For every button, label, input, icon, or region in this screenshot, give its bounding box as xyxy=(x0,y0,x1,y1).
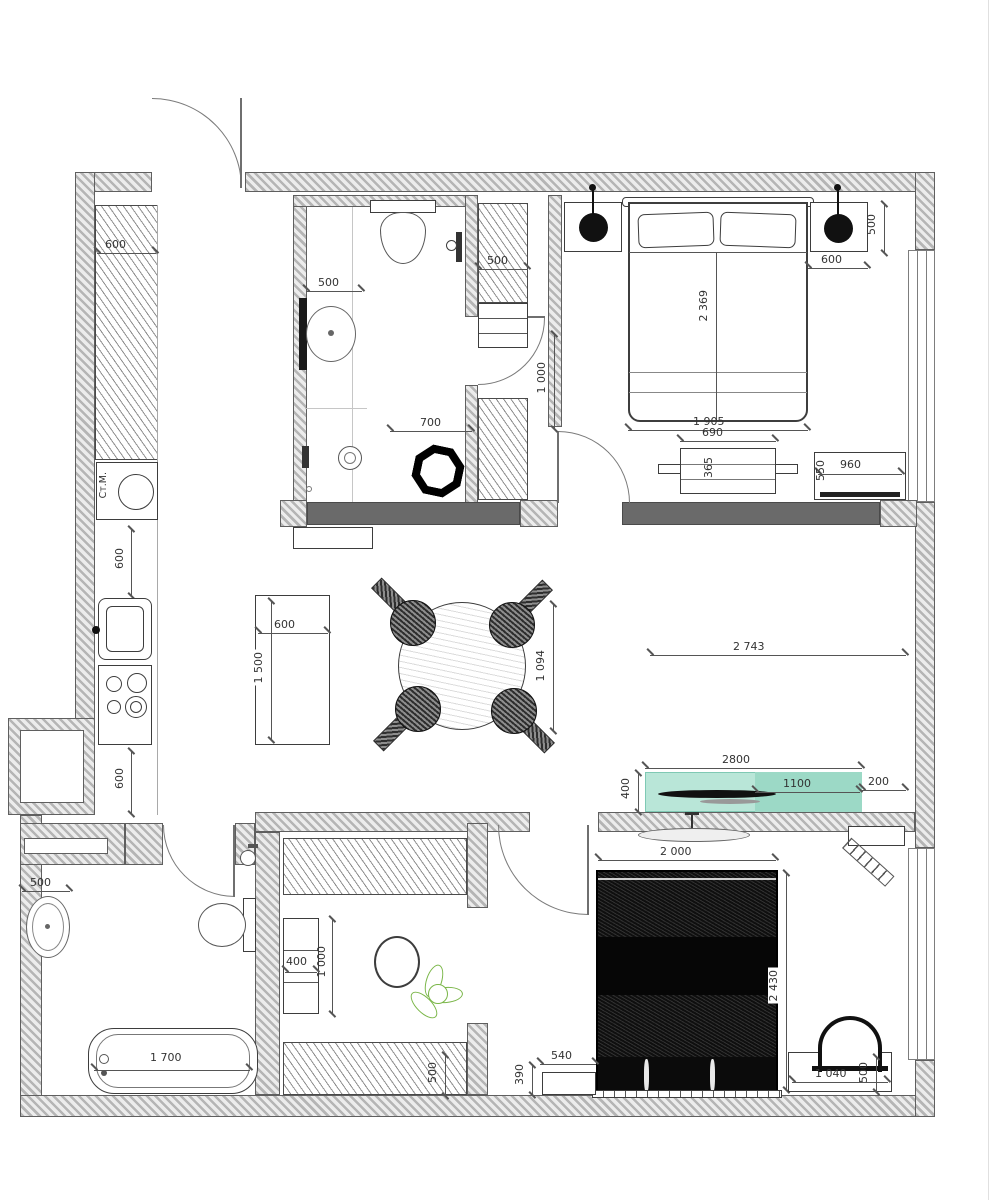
dim-line xyxy=(445,1054,446,1096)
dim-line xyxy=(258,633,328,634)
bath1-floor-line-h xyxy=(305,408,367,409)
dim-label-dresser-width: 960 xyxy=(840,459,861,470)
dim-line xyxy=(306,291,362,292)
bed1-pillow-left xyxy=(637,212,714,249)
dim-label-bench-width: 690 xyxy=(702,427,723,438)
washing-machine-drum xyxy=(118,474,154,510)
dim-label-closet-wardrobe-depth: 500 xyxy=(427,1062,438,1083)
bed1-pillow-right xyxy=(719,212,796,249)
dim-label-island-length: 1 500 xyxy=(253,650,264,686)
dim-line xyxy=(390,431,472,432)
dim-line xyxy=(862,790,906,791)
wall-partition-end-right xyxy=(880,500,917,527)
bedroom2-door-leaf xyxy=(587,825,589,915)
corridor-wardrobe-upper xyxy=(478,203,528,303)
wall-partition-bath-south xyxy=(307,502,520,525)
burner-icon-inner xyxy=(130,701,142,713)
dim-label-nightstand2-depth: 390 xyxy=(514,1064,525,1085)
dim-line xyxy=(532,1064,533,1095)
dim-label-tv-width: 1100 xyxy=(783,778,811,789)
dim-line xyxy=(540,1064,596,1065)
lamp-tip xyxy=(834,184,841,191)
dim-label-bathtub: 1 700 xyxy=(148,1052,184,1063)
dim-label-sofa: 2 743 xyxy=(733,641,765,652)
dim-line xyxy=(755,792,860,793)
dim-line xyxy=(22,891,70,892)
wall-partition-mid xyxy=(520,500,558,527)
page-edge-line xyxy=(988,0,989,1200)
burner-icon xyxy=(106,676,122,692)
duct-shaft-niche xyxy=(20,730,84,803)
corridor-wardrobe-lower xyxy=(478,398,528,500)
dim-line xyxy=(650,655,906,656)
dim-label-corridor-wardrobe: 500 xyxy=(487,255,508,266)
shower-mixer-icon xyxy=(456,232,462,262)
bed1-blanket-line xyxy=(629,392,807,393)
bench-rail-left xyxy=(658,464,682,474)
wall-right-top xyxy=(915,172,935,250)
wall-bedroom1-west xyxy=(548,195,562,427)
dim-line xyxy=(680,441,776,442)
lamp-tip xyxy=(589,184,596,191)
dim-line xyxy=(884,203,885,253)
dim-line xyxy=(332,918,333,1014)
dim-line xyxy=(792,1082,888,1083)
dim-line xyxy=(271,600,272,740)
wall-partition-end-left xyxy=(280,500,307,527)
wall-bath1-right-lower xyxy=(465,385,478,503)
ottoman xyxy=(753,660,858,726)
wall-closet-west xyxy=(255,832,280,1095)
floor-plan: 600 Ст.М. 600 600 500 700 500 1 000 xyxy=(0,0,994,1200)
dining-chair xyxy=(489,602,535,648)
dim-label-bed2-length: 2 430 xyxy=(768,968,779,1004)
window-bedroom1 xyxy=(908,250,935,502)
dim-line xyxy=(818,474,902,475)
wall-bath1-right-upper xyxy=(465,195,478,317)
bench xyxy=(680,448,776,494)
dim-label-bench-depth: 365 xyxy=(703,457,714,478)
floor-dot xyxy=(306,486,312,492)
kitchen-faucet xyxy=(92,626,100,634)
bath2-door-leaf xyxy=(233,825,235,897)
bath2-mirror-niche xyxy=(24,838,108,854)
dim-line xyxy=(554,333,555,429)
dim-label-bed1-side: 500 xyxy=(866,214,877,235)
bedroom1-door-leaf xyxy=(557,431,559,503)
corner-sink xyxy=(240,850,256,866)
dim-line xyxy=(285,972,317,973)
plant xyxy=(412,962,468,1024)
dim-line xyxy=(638,772,639,812)
hall-bench xyxy=(293,527,373,549)
corridor-shelf xyxy=(478,303,528,348)
nightstand2 xyxy=(542,1072,596,1095)
ceiling-light xyxy=(638,828,750,842)
dim-label-bed2-width: 2 000 xyxy=(660,846,692,857)
bench-rail-right xyxy=(774,464,798,474)
burner-icon xyxy=(107,700,121,714)
dim-label-tv-gap: 200 xyxy=(868,776,889,787)
lamp-stem xyxy=(837,190,839,216)
dining-chair xyxy=(491,688,537,734)
dim-label-table-diameter: 1 094 xyxy=(535,650,546,682)
dim-line xyxy=(645,768,862,769)
dim-line xyxy=(876,1056,877,1092)
dim-label-desk-width: 1 040 xyxy=(815,1068,847,1079)
wall-living-south-left xyxy=(255,812,530,832)
entry-door-arc xyxy=(152,98,242,188)
kitchen-sink-basin xyxy=(106,606,144,652)
bed2 xyxy=(596,870,778,1092)
toilet2-bowl xyxy=(198,903,246,947)
dim-label-bath1-sink: 500 xyxy=(318,277,339,288)
closet-wardrobe-top xyxy=(283,838,467,895)
sofa xyxy=(650,525,908,645)
bath2-sink-drain xyxy=(45,924,50,929)
dim-label-tv-zone-depth: 400 xyxy=(620,778,631,799)
bed2-footboard xyxy=(592,1090,782,1098)
dim-line xyxy=(131,528,132,596)
dim-label-nightstand2-width: 540 xyxy=(551,1050,572,1061)
dim-label-bath2-sink: 500 xyxy=(30,877,51,888)
bedroom2-door-arc xyxy=(498,825,588,915)
dim-label-closet-shelf-width: 400 xyxy=(286,956,307,967)
dim-label-desk-depth: 500 xyxy=(858,1062,869,1083)
dim-line xyxy=(131,750,132,814)
wall-bottom xyxy=(20,1095,935,1117)
corner-sink-bracket xyxy=(248,844,258,848)
ceiling-light-bar xyxy=(685,812,699,815)
bath2-door-arc xyxy=(163,825,235,897)
floor-mixer-icon xyxy=(302,446,309,468)
bedroom1-door-arc xyxy=(558,431,630,503)
dim-label-bed1-length: 2 369 xyxy=(698,288,709,324)
bath1-sink-drain xyxy=(328,330,334,336)
dresser-base xyxy=(820,492,900,497)
wall-closet-east-upper xyxy=(467,823,488,908)
dim-label-corridor-opening: 1 000 xyxy=(536,362,547,394)
dim-line xyxy=(598,860,776,861)
dim-label-hall-wardrobe: 600 xyxy=(105,239,126,250)
bedside-lamp-right xyxy=(824,214,853,243)
dim-line xyxy=(808,268,868,269)
dim-label-bath1-depth: 700 xyxy=(420,417,441,428)
bed1-blanket-line xyxy=(629,252,807,253)
wall-left xyxy=(75,172,95,722)
tv-stand xyxy=(700,799,760,804)
dim-line xyxy=(553,603,554,731)
dim-label-kitchen-lower: 600 xyxy=(114,768,125,789)
wall-partition-bedroom1-south xyxy=(622,502,880,525)
dim-line xyxy=(94,1070,250,1071)
dim-label-island-width: 600 xyxy=(274,619,295,630)
dim-line xyxy=(478,269,528,270)
bathtub-tap xyxy=(99,1054,109,1064)
entry-door-leaf xyxy=(240,98,242,188)
bed1-center-line xyxy=(716,252,717,420)
wall-right-bottom xyxy=(915,1060,935,1117)
wall-right-mid xyxy=(915,502,935,848)
dim-label-dresser-depth: 550 xyxy=(815,460,826,481)
washing-machine-label: Ст.М. xyxy=(99,472,109,498)
window-bedroom2 xyxy=(908,848,935,1060)
dim-label-kitchen-upper: 600 xyxy=(114,548,125,569)
dim-line xyxy=(786,872,787,1090)
desk-chair xyxy=(818,1016,882,1072)
dining-chair xyxy=(395,686,441,732)
shower-drain-inner xyxy=(344,452,356,464)
dim-label-bed1-gap: 600 xyxy=(821,254,842,265)
wall-bath2-stub-left xyxy=(125,823,163,865)
toilet1-bowl xyxy=(380,212,426,264)
dim-line xyxy=(97,253,156,254)
dim-label-tv-zone-width: 2800 xyxy=(722,754,750,765)
shower-mixer-knob xyxy=(446,240,457,251)
wall-closet-east-lower xyxy=(467,1023,488,1095)
bed1-blanket-line xyxy=(629,372,807,373)
burner-icon xyxy=(127,673,147,693)
bedside-lamp-left xyxy=(579,213,608,242)
dim-label-closet-shelf-length: 1 000 xyxy=(316,946,327,978)
closet-wardrobe-bottom xyxy=(283,1042,467,1095)
dining-chair xyxy=(390,600,436,646)
